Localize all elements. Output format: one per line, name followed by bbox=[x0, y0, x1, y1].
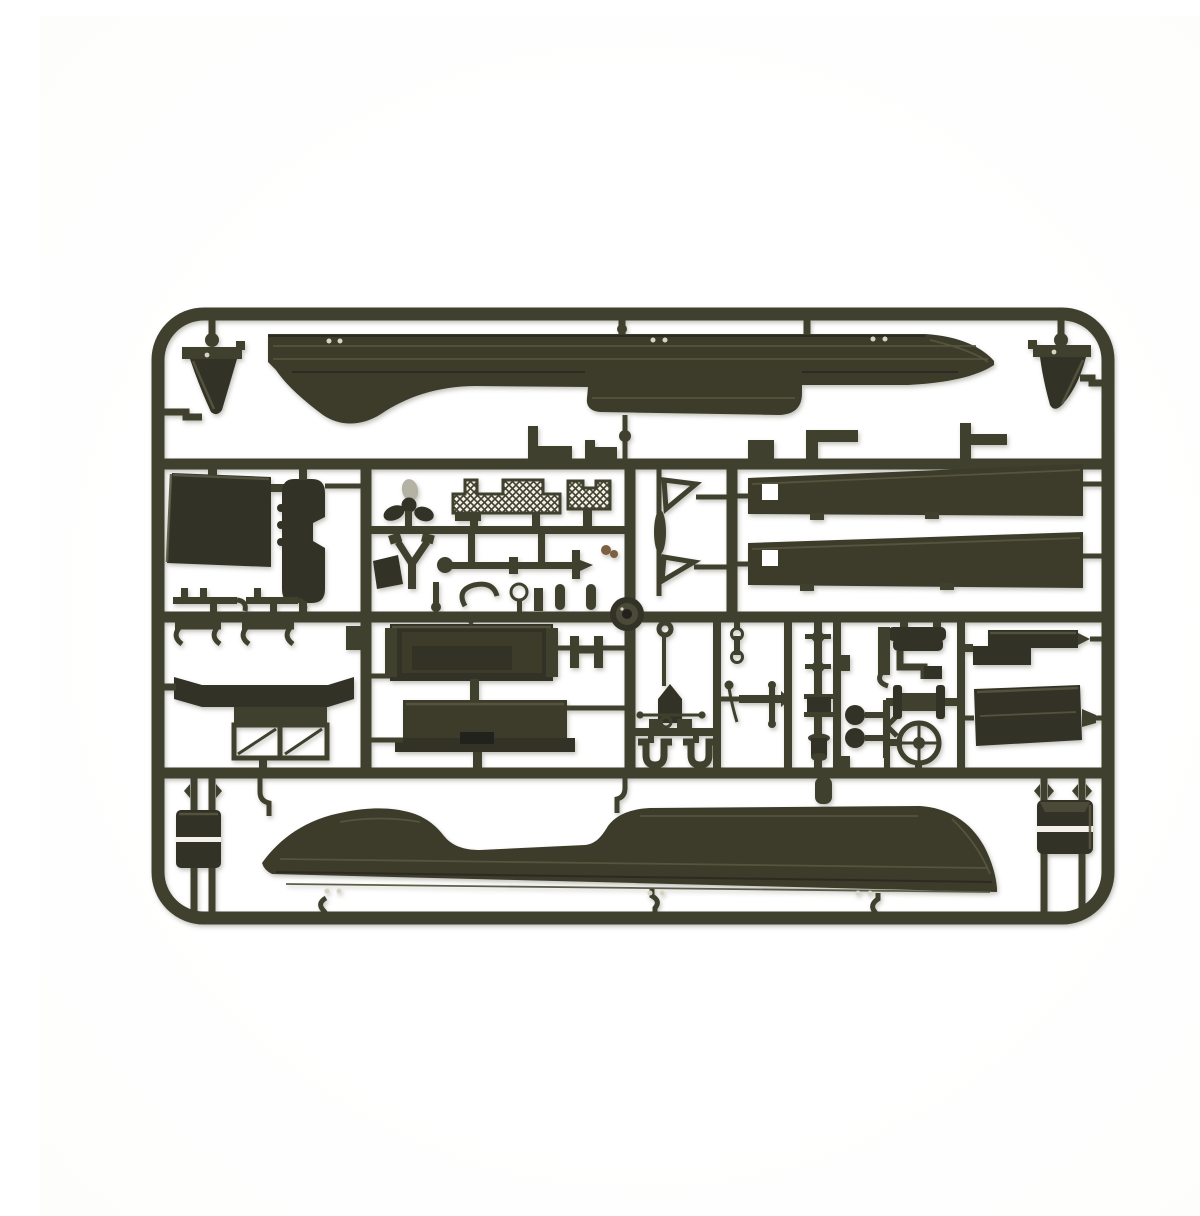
part-slat-panel-2 bbox=[366, 679, 630, 774]
part-cowl-left bbox=[164, 320, 245, 417]
part-propeller bbox=[381, 478, 436, 530]
part-mesh-grille-1 bbox=[453, 480, 560, 532]
part-float-pod bbox=[277, 466, 366, 618]
part-deck-plank-2 bbox=[732, 532, 1102, 591]
part-door-panel bbox=[167, 464, 284, 567]
sprue-photo bbox=[40, 16, 1200, 1216]
part-mesh-grille-2 bbox=[568, 481, 610, 532]
part-deck-plank-1 bbox=[732, 464, 1102, 520]
part-linkages bbox=[717, 617, 850, 772]
sprue-illustration bbox=[40, 16, 1200, 1216]
part-mast bbox=[636, 617, 705, 729]
part-hood-main bbox=[961, 685, 1102, 746]
part-hood-top bbox=[961, 630, 1102, 665]
part-steering-wheel bbox=[890, 723, 939, 773]
part-tie-rod bbox=[437, 533, 593, 579]
part-stowage-box-right bbox=[1037, 800, 1093, 854]
part-cowl-right bbox=[1028, 320, 1102, 409]
cowl-left-gate bbox=[164, 412, 202, 417]
part-wedge bbox=[373, 555, 403, 589]
part-runner1-brackets bbox=[528, 423, 1007, 460]
part-winch-drum bbox=[886, 685, 961, 719]
part-pulley-disc bbox=[610, 597, 644, 631]
part-flag-frames bbox=[654, 464, 732, 596]
part-hull-lower bbox=[262, 806, 997, 892]
part-stowage-box-left bbox=[176, 810, 221, 868]
part-windshield bbox=[158, 677, 354, 774]
part-hull-upper bbox=[268, 334, 994, 459]
part-slat-panel-1 bbox=[366, 617, 630, 681]
part-small-fittings-row bbox=[431, 545, 618, 614]
part-shackles bbox=[638, 734, 717, 765]
